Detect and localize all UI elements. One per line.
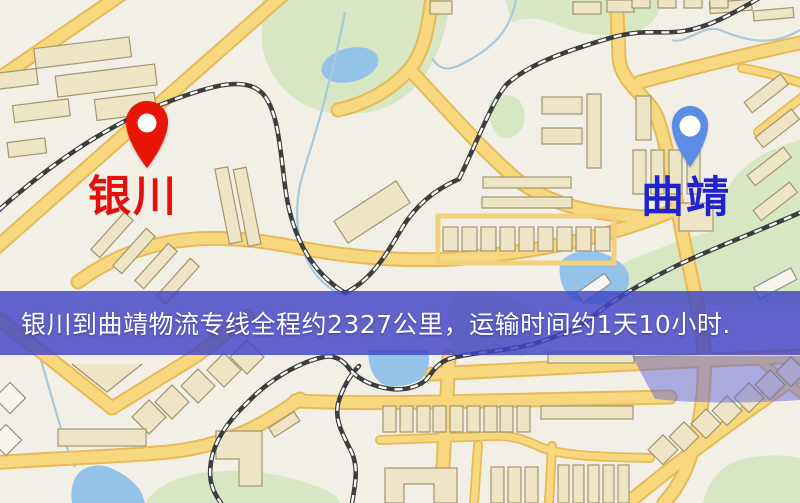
destination-pin-icon[interactable] xyxy=(668,103,712,169)
map-canvas xyxy=(0,0,800,503)
route-info-banner: 银川到曲靖物流专线全程约2327公里，运输时间约1天10小时. xyxy=(0,291,800,355)
origin-city-label: 银川 xyxy=(88,176,178,219)
blue-wash-overlay xyxy=(632,356,800,403)
origin-pin-icon[interactable] xyxy=(120,98,174,170)
route-info-text: 银川到曲靖物流专线全程约2327公里，运输时间约1天10小时. xyxy=(0,305,731,341)
logistics-map-view: 银川 曲靖 银川到曲靖物流专线全程约2327公里，运输时间约1天10小时. xyxy=(0,0,800,503)
destination-city-label: 曲靖 xyxy=(641,177,731,220)
